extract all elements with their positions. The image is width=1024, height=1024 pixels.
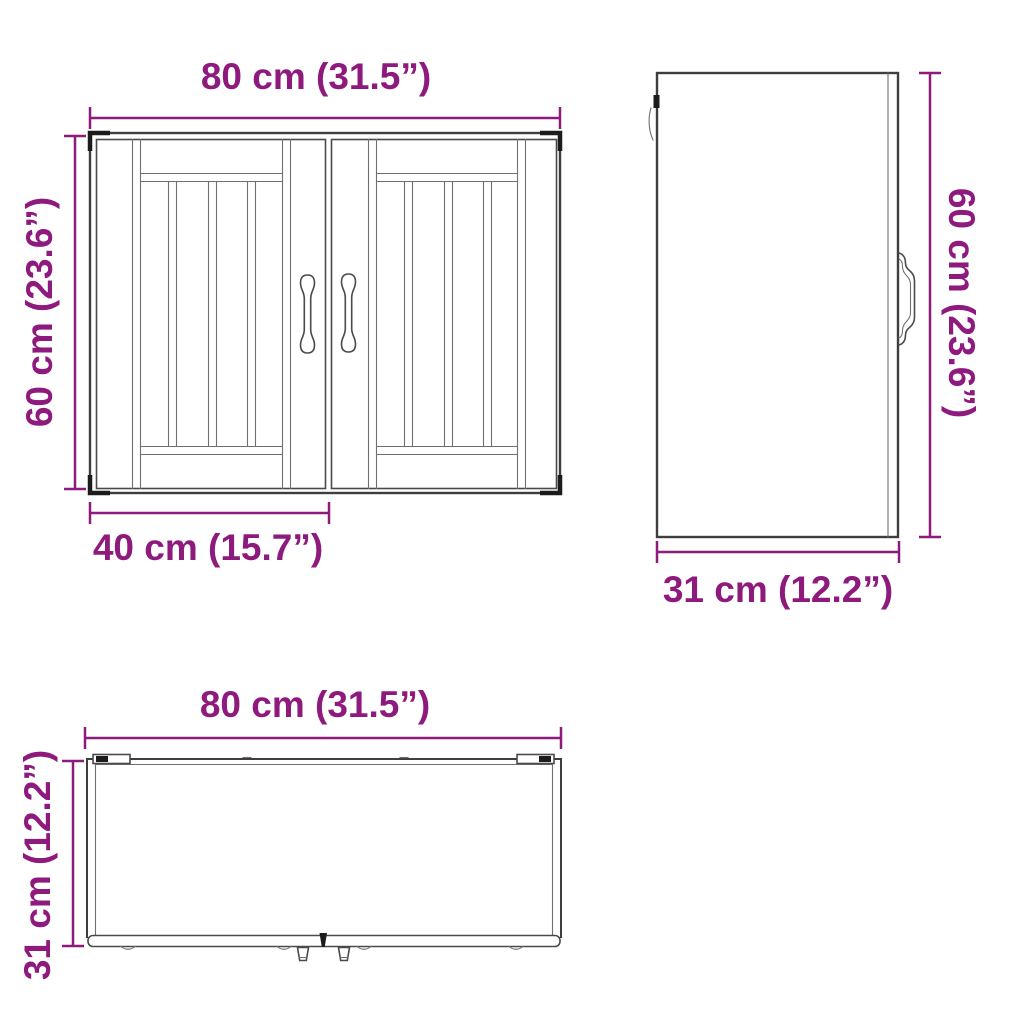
front-door-width-dimension-label: 40 cm (15.7”) bbox=[93, 527, 323, 569]
dimension-diagram-svg bbox=[0, 0, 1024, 1024]
top-width-dimension-label: 80 cm (31.5”) bbox=[200, 684, 430, 726]
top-view-drawing bbox=[62, 727, 561, 961]
side-cabinet-outline bbox=[657, 73, 898, 537]
top-door-front bbox=[88, 933, 560, 949]
top-cabinet-body bbox=[87, 758, 561, 938]
top-depth-dimension-line bbox=[62, 761, 84, 946]
side-view-drawing bbox=[649, 73, 941, 563]
top-handle-stubs bbox=[298, 948, 350, 961]
top-depth-dimension-label: 31 cm (12.2”) bbox=[17, 750, 59, 980]
side-height-dimension-label: 60 cm (23.6”) bbox=[940, 188, 982, 418]
top-width-dimension-line bbox=[85, 727, 561, 749]
front-view-drawing bbox=[64, 107, 560, 524]
side-depth-dimension-label: 31 cm (12.2”) bbox=[663, 569, 893, 611]
front-door-width-dimension-line bbox=[90, 502, 329, 524]
front-width-dimension-label: 80 cm (31.5”) bbox=[201, 56, 431, 98]
front-height-dimension-label: 60 cm (23.6”) bbox=[19, 197, 61, 427]
side-door-handle bbox=[899, 253, 915, 345]
cabinet-dimension-diagram: 80 cm (31.5”) 60 cm (23.6”) 40 cm (15.7”… bbox=[0, 0, 1024, 1024]
side-height-dimension-line bbox=[919, 73, 941, 537]
front-height-dimension-line bbox=[64, 136, 86, 489]
front-width-dimension-line bbox=[90, 107, 560, 129]
side-depth-dimension-line bbox=[657, 541, 899, 563]
